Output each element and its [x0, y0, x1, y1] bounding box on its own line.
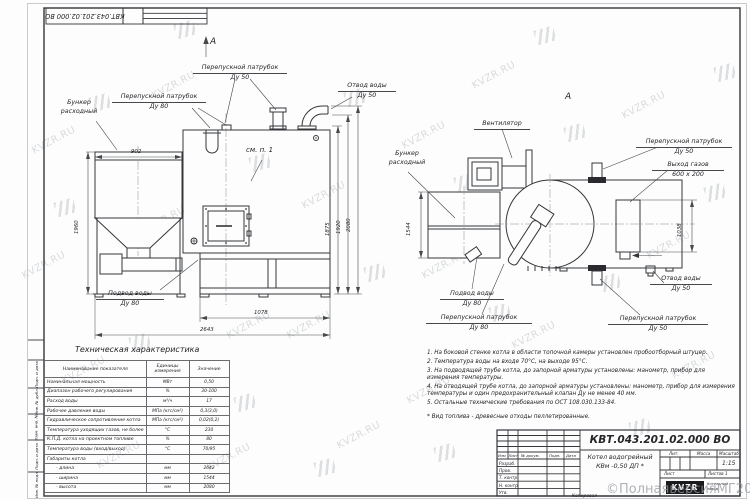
note-item: 3. На подводящей трубе котла, до запорно… [427, 368, 735, 383]
watermark-mark [533, 26, 556, 46]
stamp-row-prov: Пров. [499, 468, 511, 473]
watermark-mark [598, 273, 621, 293]
note-item: 4. На отводящей трубе котла, до запорной… [427, 384, 735, 399]
watermark-text: KVZR.RU [470, 59, 517, 91]
watermark-text: KVZR.RU [285, 309, 332, 341]
side-label: Инв. № подл. [28, 472, 44, 496]
sheet-label: Лист [664, 471, 675, 476]
mass-label: Масса [697, 451, 710, 456]
side-label: Подп. и дата [28, 360, 44, 388]
watermark-mark [703, 183, 726, 203]
side-label: Подп. и дата [28, 440, 44, 472]
notes-block: 1. На боковой стенке котла в области топ… [427, 350, 735, 423]
drawing-sheet: KVZR.RU KVZR.RU KVZR.RU KVZR.RU KVZR.RU … [0, 0, 750, 500]
doc-number-cell: КВТ.043.201.02.000 ВО [580, 430, 740, 450]
spec-row: Температура уходящих газов, не более°С23… [45, 425, 230, 435]
spec-row: К.П.Д. котла на проектном топливе%80 [45, 435, 230, 445]
scale-value: 1:15 [722, 460, 735, 467]
watermark-mark [53, 198, 76, 218]
top-view-label: А [565, 92, 571, 102]
front-water-inlet-label: Подвод воды Ду 80 [96, 290, 164, 309]
note-item: 1. На боковой стенке котла в области топ… [427, 350, 735, 357]
front-view-arrow-label: А [210, 37, 216, 47]
spec-col-name: Наименование показателя [45, 361, 147, 378]
dim-width-1544: 1544 [406, 222, 412, 236]
watermark-stamp: ©ПолнаяверсияМГ2021 [606, 482, 750, 497]
top-water-outlet-label: Отвод воды Ду 50 [650, 275, 712, 294]
watermark-mark [173, 20, 196, 40]
spec-table-title: Техническая характеристика [75, 345, 199, 354]
top-bunker-label: Бункер расходный [378, 150, 436, 168]
doc-number-top: КВТ.043.201.02.000 ВО [45, 12, 125, 20]
product-title-cell: Котел водогрейный КВм -0,50 ДП * [580, 453, 660, 472]
watermark-text: KVZR.RU [620, 89, 667, 121]
lit-label: Лит. [669, 451, 679, 456]
watermark-mark [433, 443, 456, 463]
dim-height-1920: 1920 [336, 220, 342, 234]
top-bypass50-top-label: Перепускной патрубок Ду 50 [636, 138, 732, 157]
dim-gas-1038: 1038 [677, 223, 683, 237]
spec-header-row: Наименование показателя Единицыизмерения… [45, 361, 230, 378]
stamp-row-utv: Утв. [499, 490, 508, 495]
product-title-line2: КВм -0,50 ДП * [580, 462, 660, 471]
spec-row: - длинамм2642 [45, 464, 230, 474]
dim-bunker-height: 1960 [74, 220, 80, 234]
front-bypass50-label: Перепускной патрубок Ду 50 [193, 64, 287, 83]
watermark-text: KVZR.RU [645, 229, 692, 261]
spec-row: Диапазон рабочего регулирования%30-100 [45, 387, 230, 397]
dim-height-1875: 1875 [325, 222, 331, 236]
spec-row: - высотамм2080 [45, 483, 230, 493]
copied-label: Копировал [572, 494, 597, 499]
top-fan-label: Вентилятор [474, 120, 530, 130]
stamp-row-nkontr: Н. контр. [499, 483, 519, 488]
product-title-line1: Котел водогрейный [580, 453, 660, 462]
fuel-note: * Вид топлива - древесные отходы пеллети… [427, 414, 735, 421]
front-water-outlet-label: Отвод воды Ду 50 [338, 82, 396, 101]
top-water-inlet-label: Подвод воды Ду 80 [440, 290, 504, 309]
spec-row: - ширинамм1544 [45, 473, 230, 483]
watermark-mark [453, 173, 476, 193]
spec-row: Габариты котла [45, 454, 230, 464]
stamp-col-docnum: № докум. [521, 453, 540, 458]
spec-row: Рабочее давление водыМПа (кгс/см²)0,3(3,… [45, 406, 230, 416]
spec-col-units: Единицыизмерения [146, 361, 189, 378]
stamp-col-izm: Изм [498, 453, 506, 458]
watermark-text: KVZR.RU [20, 249, 67, 281]
spec-table: Наименование показателя Единицыизмерения… [44, 360, 230, 493]
top-bypass50-bottom-label: Перепускной патрубок Ду 50 [608, 315, 708, 334]
dim-base-1078: 1078 [254, 310, 268, 316]
spec-row: Гидравлическое сопротивление котлаМПа (к… [45, 416, 230, 426]
watermark-text: KVZR.RU [300, 179, 347, 211]
dim-height-2080: 2080 [346, 218, 352, 232]
dim-length-2643: 2643 [200, 327, 214, 333]
top-gas-outlet-label: Выход газов 600 x 200 [652, 161, 724, 180]
watermark-mark [563, 123, 586, 143]
note-item: 2. Температура воды на входе 70°С, на вы… [427, 359, 735, 366]
watermark-text: KVZR.RU [335, 419, 382, 451]
spec-row: Температура воды (вход/выход)°С70/95 [45, 445, 230, 455]
watermark-text: KVZR.RU [420, 249, 467, 281]
side-label: Взам. инв. № [28, 414, 44, 440]
stamp-col-list: Лист [509, 453, 519, 458]
stamp-row-tkontr: Т. контр. [499, 475, 518, 480]
watermark-mark [713, 63, 736, 83]
doc-number-top-box: КВТ.043.201.02.000 ВО [46, 8, 123, 24]
sheets-label: Листов 1 [708, 471, 728, 476]
top-bypass80-label: Перепускной патрубок Ду 80 [426, 314, 532, 333]
watermark-text: KVZR.RU [30, 124, 77, 156]
stamp-row-razrab: Разраб. [499, 461, 515, 466]
spec-row: Номинальная мощностьМВт0,50 [45, 378, 230, 388]
doc-number: КВТ.043.201.02.000 ВО [590, 434, 731, 446]
watermark-text: KVZR.RU [140, 204, 187, 236]
dim-bunker-width: 902 [131, 149, 141, 155]
scale-label: Масштаб [719, 451, 739, 456]
note-item: 5. Остальные технические требования по О… [427, 400, 735, 407]
spec-col-value: Значение [189, 361, 229, 378]
watermark-mark [233, 393, 256, 413]
spec-row: Расход водым³/ч17 [45, 397, 230, 407]
front-bunker-label: Бункер расходный [50, 99, 108, 117]
front-bypass80-label: Перепускной патрубок Ду 80 [112, 93, 206, 112]
watermark-mark [248, 153, 271, 173]
front-see-note: см. п. 1 [246, 146, 273, 154]
stamp-col-data: Дата [566, 453, 576, 458]
watermark-mark [363, 263, 386, 283]
watermark-text: KVZR.RU [520, 179, 567, 211]
watermark-mark [313, 458, 336, 478]
watermark-text: KVZR.RU [400, 119, 447, 151]
stamp-col-podp: Подп. [549, 453, 561, 458]
side-label: Инв. № дубл. [28, 388, 44, 414]
